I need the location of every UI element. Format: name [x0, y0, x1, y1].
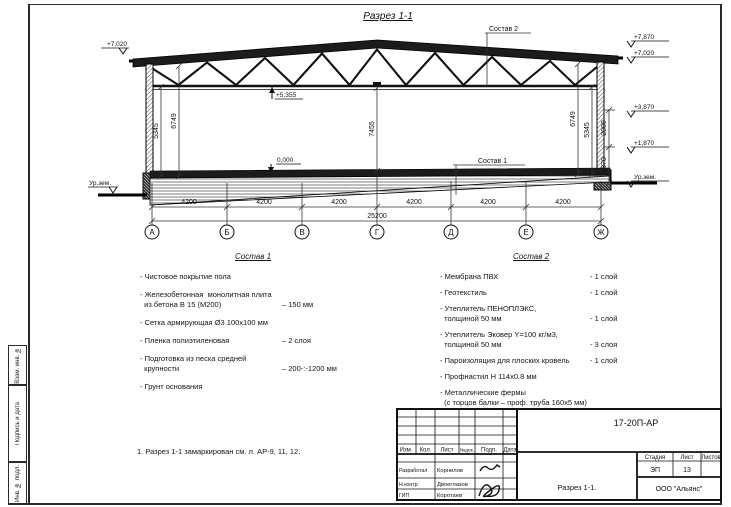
- sostav1-title: Состав 1: [235, 252, 271, 262]
- sostav1-item: - Сетка армирующая Ø3 100х100 мм: [140, 318, 440, 328]
- stamp-h-list: Лист: [440, 448, 453, 454]
- stamp-h-ndok: №док.: [460, 448, 474, 454]
- drawing-note: 1. Разрез 1-1 замаркирован см. л. АР-9, …: [137, 447, 300, 456]
- svg-text:+7,020: +7,020: [107, 41, 127, 48]
- sostav1-item: - Пленка полиэтиленовая– 2 слоя: [140, 336, 440, 346]
- stamp-name-1: Корнилов: [437, 468, 463, 474]
- sostav2-item: - Утеплитель ПЕНОПЛЭКС, толщиной 50 мм- …: [440, 304, 725, 324]
- title-block: 17-20П-АР Изм. Кол. Лист №док. Подп. Дат…: [396, 408, 722, 504]
- frame-top-line: [28, 4, 722, 5]
- bay-dim-1: 4200: [181, 199, 197, 206]
- leader-sostav1-label: Состав 1: [478, 158, 507, 165]
- stamp-h-kol: Кол.: [420, 448, 432, 454]
- elev-right-2: +7,020: [627, 50, 669, 63]
- sostav1-item: - Железобетонная монолитная плита из бет…: [140, 290, 440, 310]
- total-dim: 25200: [367, 213, 387, 220]
- axis-e: Е: [523, 228, 528, 237]
- stamp-h-podp: Подп.: [481, 448, 497, 454]
- frame-cell-podpis-label: Подпись и дата: [15, 402, 21, 445]
- sostav1-item: - Подготовка из песка средней крупности–…: [140, 354, 440, 374]
- signature-2: [479, 485, 499, 497]
- svg-text:+3,870: +3,870: [634, 104, 654, 111]
- svg-text:0,000: 0,000: [277, 157, 294, 164]
- sostav2-item: - Пароизоляция для плоских кровель- 1 сл…: [440, 356, 725, 366]
- frame-cell-inv-label: Инв. № подл.: [15, 465, 21, 502]
- stamp-role-1: Разработал: [399, 468, 427, 474]
- stamp-stage-value: ЭП: [650, 467, 660, 474]
- svg-text:Ур.зем.: Ур.зем.: [89, 180, 111, 187]
- elev-left-top: +7,020: [101, 41, 129, 54]
- axis-g: Г: [375, 228, 380, 237]
- bay-dim-6: 4200: [555, 199, 571, 206]
- stamp-sheet-label: Лист: [680, 455, 693, 461]
- axis-zh: Ж: [597, 228, 605, 237]
- stamp-stage-label: Стадия: [645, 455, 665, 461]
- elev-ground-right: Ур.зем.: [627, 174, 669, 187]
- frame-cell-vzam-label: Взам. инв. №: [15, 347, 21, 384]
- sostav2-item: - Профнастил Н 114х0.8 мм: [440, 372, 725, 382]
- dim-left-inner: 6749: [171, 113, 178, 129]
- stamp-name-3: Коротаев: [437, 493, 462, 499]
- stamp-doc-number: 17-20П-АР: [614, 418, 659, 428]
- svg-text:Ур.зем.: Ур.зем.: [634, 174, 656, 181]
- svg-text:+1,870: +1,870: [634, 140, 654, 147]
- frame-cell-inv: Инв. № подл.: [8, 462, 27, 504]
- sostav1-item: - Грунт основания: [140, 382, 440, 392]
- signatures: [479, 465, 500, 497]
- stamp-role-3: ГИП: [399, 493, 410, 499]
- axis-bubbles: А Б В Г Д Е Ж: [145, 225, 608, 239]
- elev-right-1: +7,870: [627, 34, 669, 47]
- bay-dim-4: 4200: [406, 199, 422, 206]
- dim-left-outer: 5345: [153, 123, 160, 139]
- sostav2-item: - Утеплитель Эковер Y=100 кг/м3, толщино…: [440, 330, 725, 350]
- elev-right-3: +3,870: [627, 104, 669, 117]
- stamp-h-data: Дата: [503, 448, 517, 454]
- stamp-h-izm: Изм.: [400, 448, 413, 454]
- axis-b: Б: [224, 228, 229, 237]
- bay-dim-5: 4200: [480, 199, 496, 206]
- section-drawing: Состав 2 Состав 1 +7,020 +5,355 0,000: [85, 25, 670, 245]
- dim-right-inner: 6749: [570, 111, 577, 127]
- sostav1-block: Состав 1 - Чистовое покрытие пола - Желе…: [140, 252, 440, 400]
- stamp-role-2: Н.контр.: [399, 482, 419, 488]
- dim-center: 7455: [369, 121, 376, 137]
- frame-cell-podpis: Подпись и дата: [8, 385, 27, 462]
- frame-left-line: [28, 4, 30, 504]
- bay-dim-2: 4200: [256, 199, 272, 206]
- sostav2-title: Состав 2: [513, 252, 549, 262]
- axis-d: Д: [448, 228, 454, 237]
- elev-right-4: +1,870: [627, 140, 669, 153]
- axis-a: А: [149, 228, 155, 237]
- dim-right-lower: 1870: [601, 157, 608, 173]
- frame-cell-vzam: Взам. инв. №: [8, 345, 27, 385]
- signature-1: [480, 465, 500, 471]
- bay-dim-3: 4200: [331, 199, 347, 206]
- leader-sostav2-label: Состав 2: [489, 26, 518, 33]
- sostav2-item: - Металлические фермы (с торцов балки – …: [440, 388, 725, 408]
- stamp-company: ООО "Альянс": [656, 486, 703, 493]
- elev-chord: +5,355: [269, 87, 303, 99]
- vertical-dimensions: 5345 6749 7455 6749 5345 2000 1870: [153, 61, 615, 186]
- stamp-sheets-label: Листов: [701, 455, 721, 461]
- axis-v: В: [299, 228, 304, 237]
- stamp-name-2: Двоеглазов: [437, 482, 468, 488]
- svg-text:+7,020: +7,020: [634, 50, 654, 57]
- elev-ground-left: Ур.зем.: [88, 180, 118, 193]
- stamp-drawing-title: Разрез 1-1.: [558, 483, 597, 492]
- stamp-sheet-value: 13: [683, 467, 691, 474]
- section-title: Разрез 1-1: [338, 11, 438, 22]
- sostav2-item: - Мембрана ПВХ- 1 слой: [440, 272, 725, 282]
- sostav2-block: Состав 2 - Мембрана ПВХ- 1 слой - Геотек…: [440, 252, 725, 414]
- sostav2-item: - Геотекстиль- 1 слой: [440, 288, 725, 298]
- dim-right-outer: 5345: [584, 122, 591, 138]
- sostav1-item: - Чистовое покрытие пола: [140, 272, 440, 282]
- dim-right-upper: 2000: [601, 120, 608, 136]
- svg-text:+5,355: +5,355: [276, 92, 296, 99]
- svg-text:+7,870: +7,870: [634, 34, 654, 41]
- drawing-sheet: Взам. инв. № Подпись и дата Инв. № подл.…: [0, 0, 731, 507]
